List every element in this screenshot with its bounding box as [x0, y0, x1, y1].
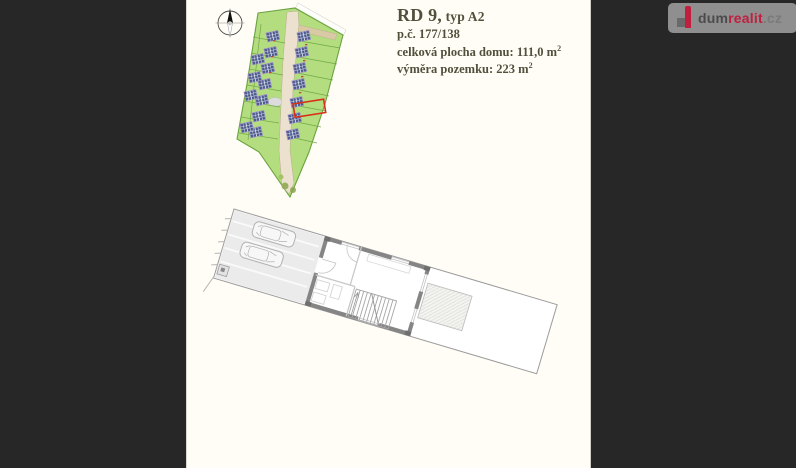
house-roof [248, 72, 262, 83]
page-title: RD 9, typ A2 [397, 5, 561, 26]
house-roof [295, 47, 309, 58]
dumrealit-house-icon [677, 6, 693, 30]
house-roof [293, 63, 307, 74]
plot-area-line: výměra pozemku: 223 m2 [397, 59, 561, 77]
house-area-exponent: 2 [557, 44, 561, 53]
property-info: RD 9, typ A2 p.č. 177/138 celková plocha… [397, 5, 561, 77]
brand-prefix: dum [698, 10, 728, 26]
house-roof [244, 90, 258, 101]
unit-number: RD 9, [397, 5, 442, 25]
plot-area-label: výměra pozemku: [397, 62, 496, 76]
house-area-line: celková plocha domu: 111,0 m2 [397, 42, 561, 60]
parcel-number: p.č. 177/138 [397, 27, 561, 42]
house-roof [286, 129, 300, 140]
brand-name: dumrealit.cz [698, 10, 782, 26]
house-area-value: 111,0 m [517, 45, 557, 59]
compass-north-icon [216, 9, 245, 38]
house-roof [261, 63, 275, 74]
image-viewer-background: RD 9, typ A2 p.č. 177/138 celková plocha… [0, 0, 796, 468]
house-roof [297, 31, 311, 42]
house-roof [266, 31, 280, 42]
house-roof [251, 54, 265, 65]
house-roof [240, 122, 254, 133]
plot-area-value: 223 m [496, 62, 528, 76]
site-plan [237, 3, 346, 197]
unit-type: typ A2 [442, 9, 485, 24]
brand-highlight: realit [728, 10, 763, 26]
house-area-label: celková plocha domu: [397, 45, 517, 59]
brand-suffix: .cz [763, 10, 782, 26]
plot-area-exponent: 2 [529, 61, 533, 70]
house-roof [292, 79, 306, 90]
house-roof [264, 47, 278, 58]
plan-sheet: RD 9, typ A2 p.č. 177/138 celková plocha… [186, 0, 591, 468]
floor-plan [203, 207, 557, 389]
dumrealit-watermark: dumrealit.cz [668, 3, 796, 33]
house-roof [252, 111, 266, 122]
logo-tower-shape [685, 6, 691, 28]
